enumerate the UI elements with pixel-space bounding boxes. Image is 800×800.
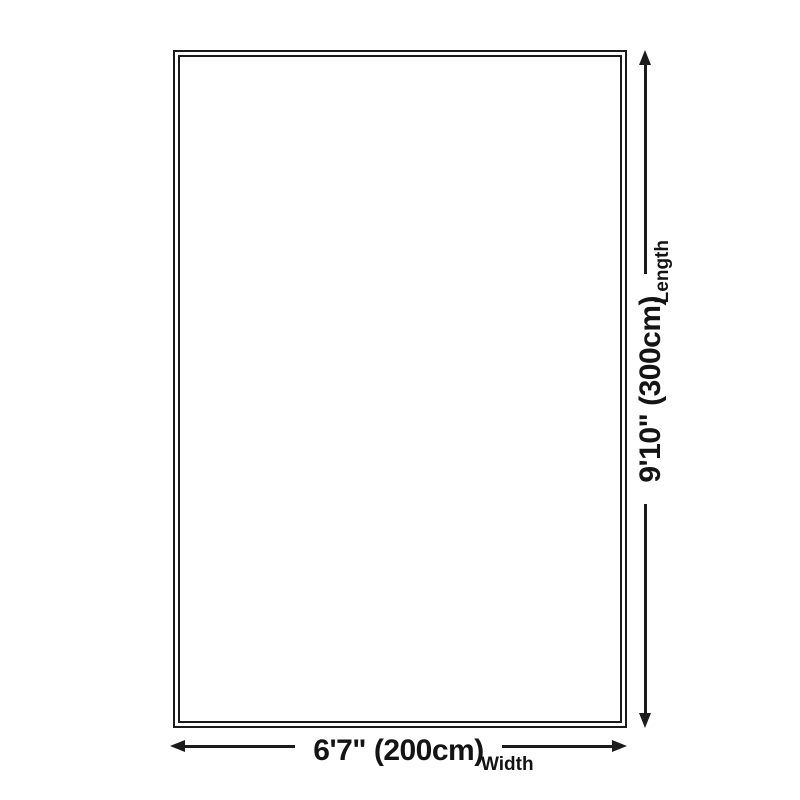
length-axis-label: Length xyxy=(653,240,672,303)
length-value-label: 9'10" (300cm) xyxy=(636,296,666,483)
width-dimension-arrow: 6'7" (200cm) Width xyxy=(170,735,627,757)
width-arrow-line-left xyxy=(185,745,295,748)
length-dimension-arrow: 9'10" (300cm) Length xyxy=(631,50,659,728)
arrow-up-icon xyxy=(639,50,651,65)
arrow-down-icon xyxy=(639,713,651,728)
rug-outline xyxy=(173,50,627,728)
rug-outline-inner-border xyxy=(178,55,622,723)
arrow-left-icon xyxy=(170,740,185,752)
length-arrow-line-lower xyxy=(644,504,647,713)
width-axis-label: Width xyxy=(481,755,534,774)
width-arrow-line-right xyxy=(502,745,612,748)
arrow-right-icon xyxy=(612,740,627,752)
rug-size-diagram: 9'10" (300cm) Length 6'7" (200cm) Width xyxy=(0,0,800,800)
length-arrow-line-upper xyxy=(644,65,647,274)
width-value-label: 6'7" (200cm) xyxy=(313,736,483,766)
